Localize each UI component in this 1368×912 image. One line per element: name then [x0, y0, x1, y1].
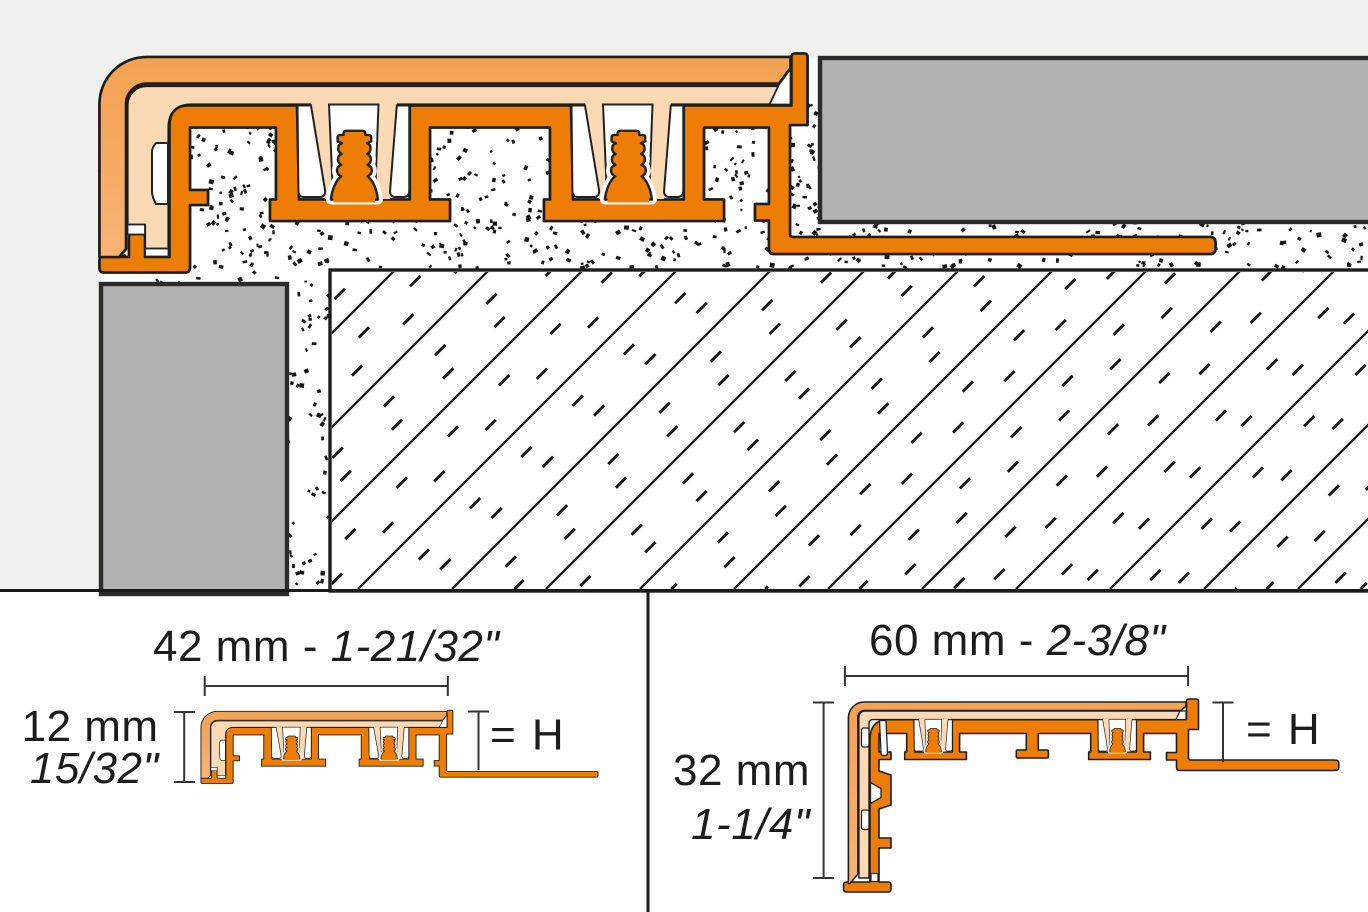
svg-text:= H: = H — [490, 711, 566, 760]
svg-text:42 mm - 1-21/32": 42 mm - 1-21/32" — [153, 622, 501, 671]
svg-text:15/32": 15/32" — [30, 744, 161, 793]
svg-text:1-1/4": 1-1/4" — [691, 800, 812, 849]
svg-text:= H: = H — [1246, 705, 1322, 754]
svg-text:60 mm - 2-3/8": 60 mm - 2-3/8" — [869, 616, 1167, 665]
svg-text:32 mm: 32 mm — [673, 746, 810, 795]
